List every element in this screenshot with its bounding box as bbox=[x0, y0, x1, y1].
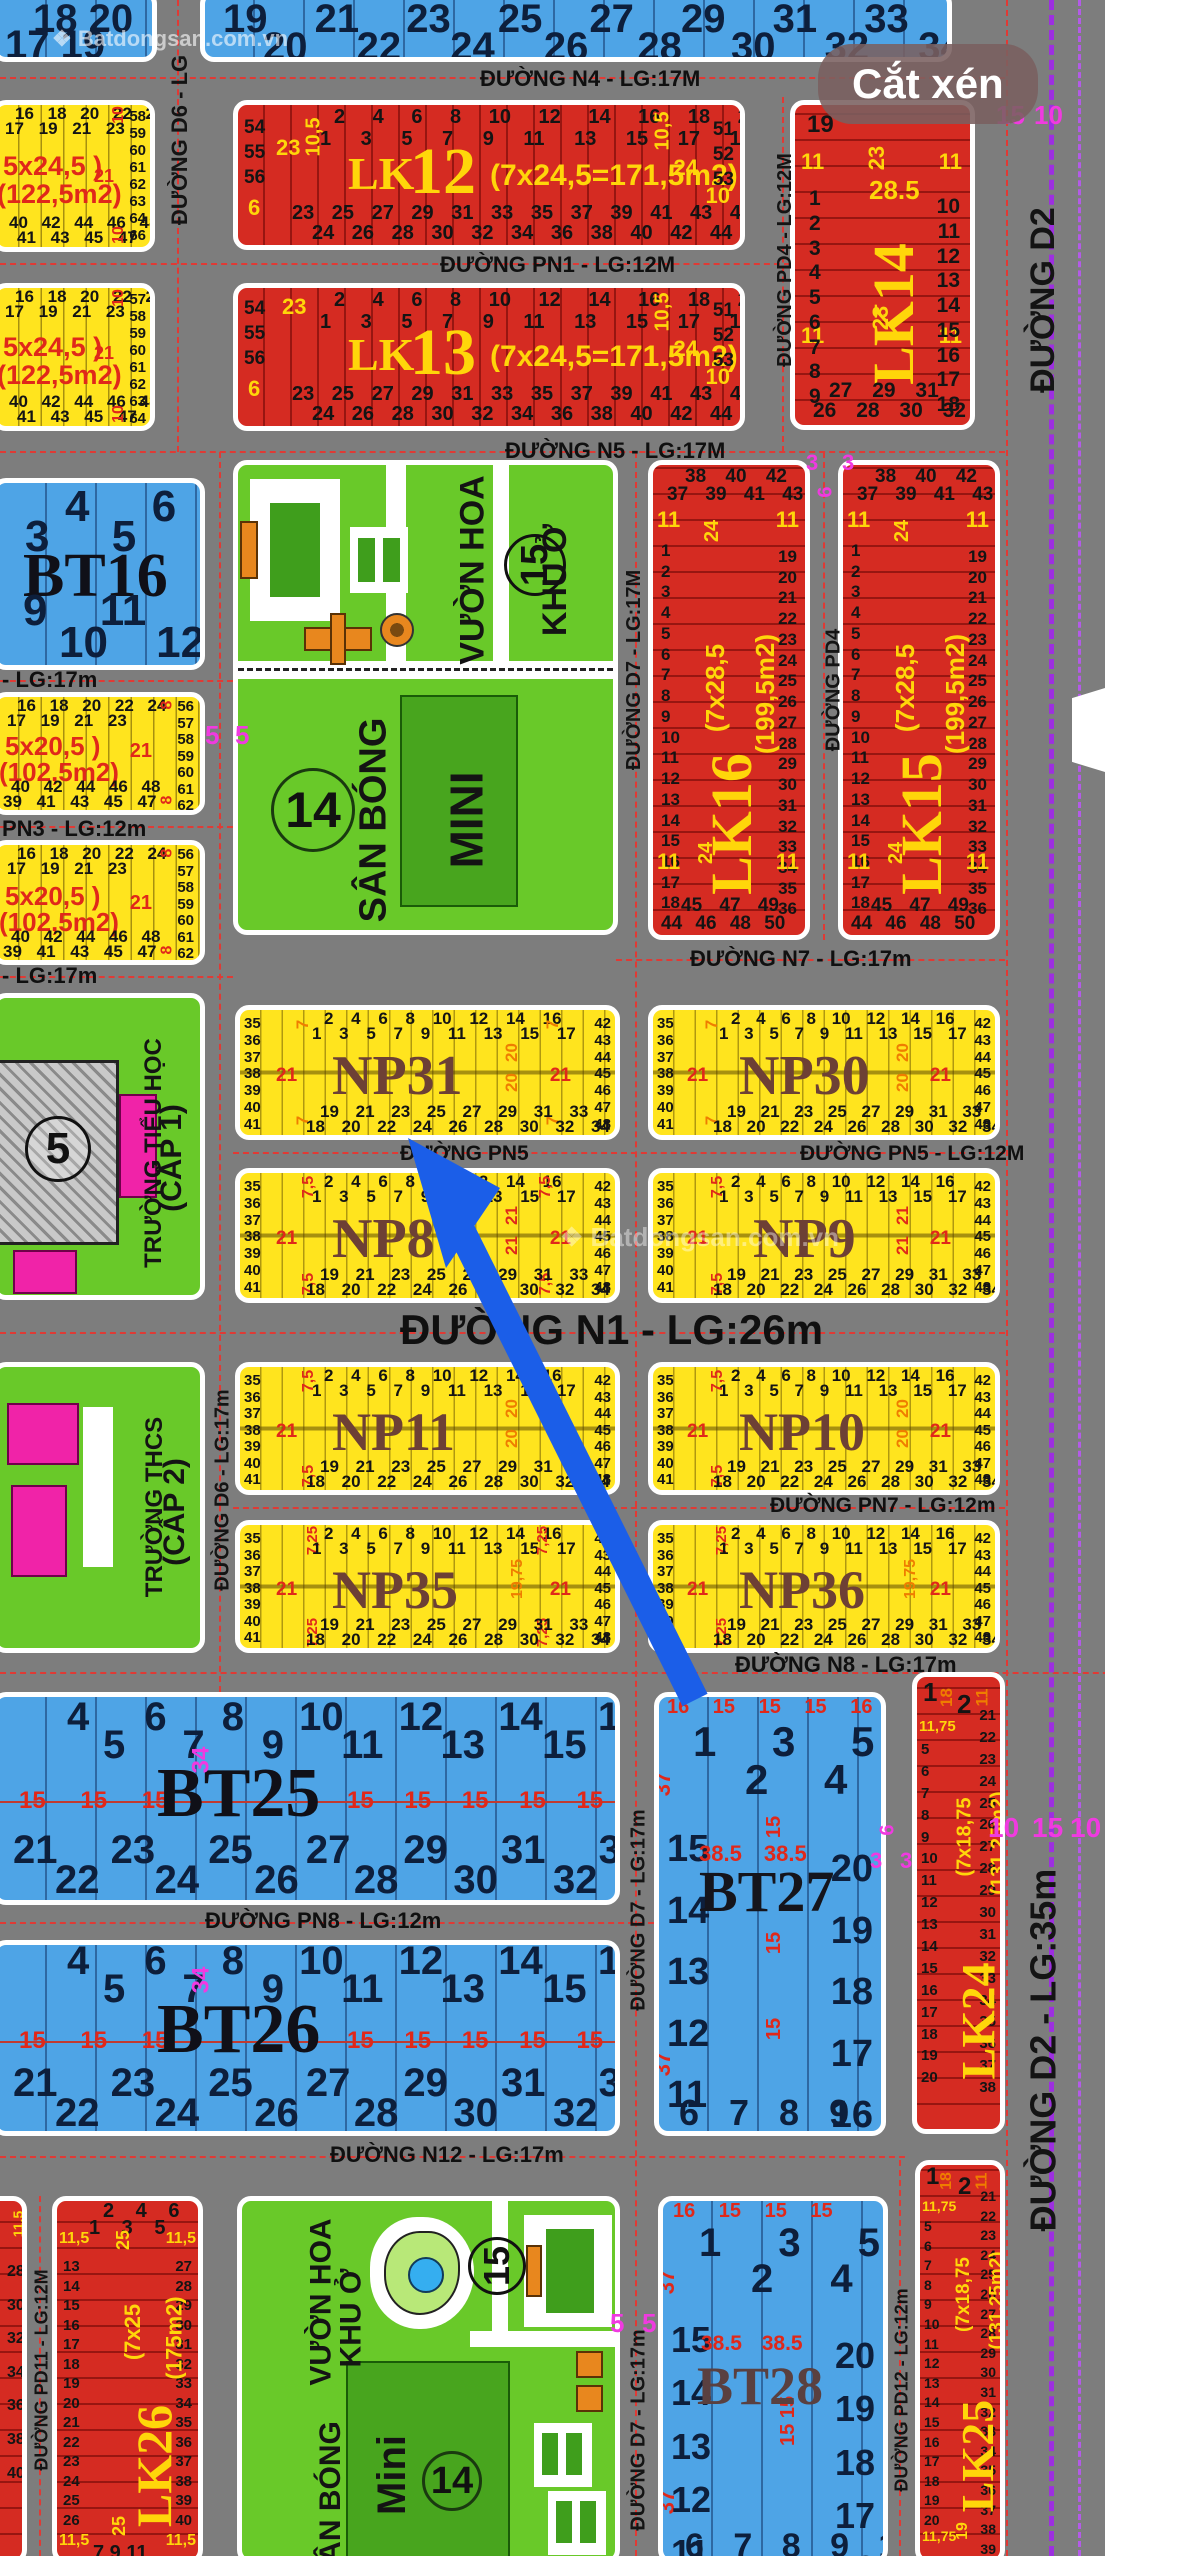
survey-mark: 34 bbox=[189, 1967, 213, 1994]
plot-numbers: 17 19 21 23 bbox=[7, 860, 127, 877]
survey-mark: 6 bbox=[816, 486, 836, 497]
plot-numbers: 6 7 8 9 10 bbox=[679, 2095, 886, 2131]
block-label: LK25 bbox=[955, 2400, 1001, 2512]
block-label: NP8 bbox=[332, 1211, 435, 1267]
d2-median-line bbox=[1078, 0, 1081, 2556]
block-np36: 35 36 37 38 39 40 41 7,25 7,25 21 2 4 6 … bbox=[648, 1520, 1000, 1653]
block-5x245-b: 16 18 20 22 24 17 19 21 23 5x24,5 ) (122… bbox=[0, 283, 155, 431]
dimension-label: 25 bbox=[114, 2230, 132, 2250]
pond bbox=[408, 2257, 444, 2293]
table-tennis-table bbox=[554, 2499, 574, 2545]
plot-numbers: 2 bbox=[958, 2175, 971, 2199]
block-dims: 5x24,5 ) bbox=[3, 334, 102, 361]
map-margin bbox=[1105, 0, 1179, 2556]
zone-number: 5 bbox=[25, 1116, 91, 1182]
plot-numbers: 22 24 26 28 30 32 34 bbox=[55, 1860, 620, 1900]
street-label-pn7: ĐƯỜNG PN7 - LG:12m bbox=[770, 1494, 996, 1518]
dimension-label: 11,5 bbox=[59, 2231, 89, 2247]
dimension-label: 37 bbox=[658, 2270, 678, 2294]
dimension-label: 10 bbox=[706, 185, 730, 207]
dimension-label: 8 bbox=[160, 849, 176, 858]
block-np11: 35 36 37 38 39 40 41 7,5 7,5 21 2 4 6 8 … bbox=[235, 1362, 620, 1495]
dimension-label: 20 bbox=[503, 1043, 520, 1062]
dimension-label: 21 bbox=[94, 167, 114, 185]
block-5x245-a: 16 18 20 22 24 17 19 21 23 5x24,5 ) (122… bbox=[0, 100, 155, 252]
dimension-label: 7,25 bbox=[535, 1526, 550, 1555]
block-lk24: 1 2 18 11 11,75 5 6 7 8 9 10 11 12 13 14… bbox=[912, 1672, 1005, 2134]
tennis-court bbox=[268, 501, 322, 599]
plot-numbers: 26 28 30 32 bbox=[813, 400, 966, 421]
dimension-label: 10 bbox=[111, 405, 127, 423]
dimension-label: 15 bbox=[764, 1816, 784, 1838]
plot-numbers: 18 20 22 24 26 28 30 32 34 bbox=[713, 1281, 1000, 1298]
block-label: LK15 bbox=[893, 753, 951, 895]
road-centerline bbox=[1006, 0, 1008, 2556]
land-plot-map: ĐƯỜNG D2 ĐƯỜNG D2 - LG:35m 18 20 17 19 1… bbox=[0, 0, 1179, 2556]
plot-numbers: 18 20 22 24 26 28 30 32 34 bbox=[306, 1631, 610, 1648]
plot-numbers: 35 36 37 38 39 40 41 bbox=[244, 1531, 261, 1647]
block-bt26: 4 6 8 10 12 14 16 5 7 9 11 13 15 17 15 1… bbox=[0, 1940, 620, 2136]
dimension-label: 24 bbox=[674, 338, 698, 360]
park-monument bbox=[330, 613, 346, 665]
street-label-lg17: - LG:17m bbox=[2, 963, 97, 989]
park-label: VƯỜN HOA bbox=[456, 475, 490, 664]
dimension-label: 11,75 bbox=[919, 1719, 956, 1734]
plot-numbers: 17 19 21 23 bbox=[5, 120, 125, 137]
dimension-label: 24 bbox=[696, 842, 716, 864]
watermark: ❖ Batdongsan.com.vn bbox=[560, 1222, 839, 1253]
zone-number: 15 bbox=[504, 534, 566, 596]
dimension-label: 20 bbox=[503, 1073, 520, 1092]
x-marker-icon bbox=[576, 2351, 603, 2378]
street-label-pn8: ĐƯỜNG PN8 - LG:12m bbox=[205, 1908, 441, 1934]
plot-numbers: 1 3 5 7 9 11 13 15 17 bbox=[719, 1025, 967, 1042]
block-bt27: 16 15 15 15 16 1 3 5 2 4 37 37 15 14 13 … bbox=[654, 1692, 886, 2136]
dimension-label: 18 bbox=[939, 2172, 955, 2190]
plot-numbers: 1 3 5 7 9 11 13 15 17 bbox=[719, 1188, 967, 1205]
block-np31: 35 36 37 38 39 40 41 7 7 21 2 4 6 8 10 1… bbox=[235, 1005, 620, 1140]
plot-numbers: 1 3 5 7 9 11 13 15 17 bbox=[719, 1382, 967, 1399]
street-label-lg17: - LG:17m bbox=[2, 667, 97, 693]
block-label: BT25 bbox=[157, 1759, 320, 1829]
block-park-bottom: VƯỜN HOA KHU Ở 15 SÂN BÓNG Mini 14 bbox=[237, 2196, 620, 2556]
block-label: LK16 bbox=[703, 753, 761, 895]
road-centerline bbox=[0, 1672, 1179, 1674]
block-label-number: 12 bbox=[410, 139, 476, 205]
street-label-d6-top: ĐƯỜNG D6 - LG bbox=[169, 55, 191, 225]
block-dims: (199,5m2) bbox=[752, 634, 778, 754]
street-label-n5: ĐƯỜNG N5 - LG:17M bbox=[505, 438, 725, 464]
survey-mark: 5 bbox=[610, 2310, 624, 2336]
school-grade: (CẤP 2) bbox=[160, 1458, 190, 1566]
street-label-pn1: ĐƯỜNG PN1 - LG:12M bbox=[440, 252, 675, 278]
street-label-pn5: ĐƯỜNG PN5 bbox=[400, 1142, 529, 1166]
badge-label: Cắt xén bbox=[852, 60, 1004, 107]
block-lk16: 38 40 42 37 39 41 43 11 11 24 1 2 3 4 5 … bbox=[648, 460, 810, 940]
plot-numbers: 18 20 22 24 26 28 30 32 34 bbox=[713, 1118, 1000, 1135]
dimension-label: 11,5 bbox=[166, 2231, 196, 2247]
dimension-label: 21 bbox=[687, 1066, 708, 1085]
plot-numbers: 10 12 bbox=[59, 621, 205, 665]
block-label-number: 13 bbox=[410, 320, 476, 386]
plot-numbers: 28 30 32 34 36 38 40 bbox=[7, 2255, 25, 2490]
block-label: BT28 bbox=[697, 2359, 823, 2413]
dimension-label: 8 bbox=[160, 946, 176, 955]
street-label-n8: ĐƯỜNG N8 - LG:17m bbox=[735, 1652, 957, 1678]
dimension-label: 20 bbox=[894, 1429, 911, 1448]
table-tennis-table bbox=[540, 2431, 560, 2477]
dimension-label: 21 bbox=[894, 1206, 911, 1225]
block-label: BT27 bbox=[699, 1863, 834, 1921]
plot-numbers: 42 43 44 45 46 47 48 bbox=[594, 1531, 611, 1647]
park-building bbox=[240, 521, 258, 579]
street-label-d6: ĐƯỜNG D6 - LG:17m bbox=[213, 1389, 233, 1590]
dimension-label: 21 bbox=[276, 1066, 297, 1085]
school-building bbox=[11, 1485, 67, 1577]
school-grade: (CẤP 1) bbox=[157, 1104, 187, 1212]
plot-numbers: 18 20 22 24 26 28 30 32 34 bbox=[713, 1473, 1000, 1490]
survey-mark: 3 bbox=[900, 1850, 912, 1872]
block-label: NP30 bbox=[739, 1048, 870, 1104]
dimension-label: 10 bbox=[706, 366, 730, 388]
plot-numbers: 44 46 48 50 bbox=[661, 914, 785, 933]
dimension-label: 7 bbox=[703, 1020, 720, 1029]
dimension-label: 20 bbox=[894, 1043, 911, 1062]
dimension-label: 15 15 15 bbox=[19, 1789, 168, 1813]
plot-numbers: 2 4 bbox=[751, 2259, 853, 2299]
road-centerline bbox=[0, 451, 1005, 453]
plot-numbers: 5 6 7 8 9 10 11 12 13 14 15 16 17 18 19 … bbox=[921, 1739, 938, 2089]
watermark: ❖ Batdongsan.com.vn bbox=[52, 26, 288, 52]
block-school-cap2: TRƯỜNG THCS (CẤP 2) bbox=[0, 1362, 205, 1653]
street-label-n7: ĐƯỜNG N7 - LG:17m bbox=[690, 946, 912, 972]
dimension-label: 8 bbox=[160, 701, 176, 710]
dimension-label: 28.5 bbox=[869, 177, 920, 203]
dimension-label: 20 bbox=[503, 1429, 520, 1448]
dimension-label: 11,75 bbox=[922, 2199, 956, 2213]
dimension-label: 38.5 38.5 bbox=[701, 2333, 803, 2354]
block-park-top: VƯỜN HOA KHU Ở 15 SÂN BÓNG MINI 14 bbox=[233, 460, 618, 935]
dimension-label: 20 bbox=[894, 1073, 911, 1092]
dimension-label: 11 bbox=[847, 509, 870, 531]
dimension-label: 7 bbox=[544, 1020, 561, 1029]
plot-numbers: 42 43 44 45 46 47 48 bbox=[974, 1373, 991, 1489]
dimension-label: 21 bbox=[930, 1066, 951, 1085]
survey-mark: 3 bbox=[870, 1850, 882, 1872]
block-np10: 35 36 37 38 39 40 41 7,5 7,5 21 2 4 6 8 … bbox=[648, 1362, 1000, 1495]
plot-numbers: 35 36 37 38 39 40 41 bbox=[657, 1531, 674, 1647]
street-label-pn5-lg: ĐƯỜNG PN5 - LG:12M bbox=[800, 1142, 1024, 1166]
plot-numbers: 7 9 11 bbox=[93, 2543, 148, 2556]
survey-mark: 3 bbox=[806, 452, 818, 474]
survey-mark: 6 bbox=[878, 1824, 898, 1835]
street-label-d7: ĐƯỜNG D7 - LG:17m bbox=[629, 2329, 649, 2530]
plot-numbers: 44 46 48 50 bbox=[851, 914, 975, 933]
block-label: NP35 bbox=[332, 1563, 458, 1617]
block-dims: 5x24,5 ) bbox=[3, 153, 102, 180]
dimension-label: 16 15 15 15 bbox=[673, 2201, 833, 2221]
plot-numbers: 42 43 44 45 46 47 48 bbox=[594, 1373, 611, 1489]
survey-mark: 10 bbox=[1034, 102, 1063, 128]
plot-numbers: 35 36 37 38 39 40 41 bbox=[657, 1373, 674, 1489]
block-label: LK26 bbox=[129, 2405, 179, 2527]
plot-numbers: 2 4 6 8 10 12 14 16 18 20 22 bbox=[334, 107, 745, 127]
street-label-pn3: PN3 - LG:12m bbox=[2, 816, 146, 842]
dimension-label: 11 bbox=[801, 151, 824, 173]
dimension-label: 15 bbox=[764, 2018, 784, 2040]
block-dims: (175m2) bbox=[164, 2296, 186, 2379]
dimension-label: 15 15 15 bbox=[19, 2029, 168, 2053]
plot-numbers: 22 24 26 28 30 32 34 bbox=[55, 2093, 620, 2133]
zone-number: 15 bbox=[468, 2237, 526, 2295]
park-label: SÂN BÓNG bbox=[354, 718, 392, 923]
dimension-label: 21 bbox=[930, 1229, 951, 1248]
dimension-label: 19 bbox=[955, 2522, 971, 2540]
dimension-label: 24 bbox=[702, 520, 722, 542]
dimension-label: 11 bbox=[657, 851, 680, 873]
dimension-label: 23 bbox=[282, 296, 306, 318]
x-marker-icon bbox=[576, 2385, 603, 2412]
dimension-label: 11 bbox=[657, 509, 680, 531]
plot-numbers: 23 25 27 29 31 33 35 37 39 41 43 45 47 4… bbox=[292, 384, 745, 404]
block-label: NP36 bbox=[739, 1563, 865, 1617]
dimension-label: 23 bbox=[866, 146, 888, 170]
dimension-label: 10 bbox=[111, 106, 127, 124]
plot-numbers: 5 6 7 8 9 10 11 12 13 14 15 16 17 18 19 … bbox=[924, 2217, 940, 2531]
plot-numbers: 1 3 5 7 9 11 13 15 17 bbox=[719, 1540, 967, 1557]
dimension-label: 21 bbox=[687, 1580, 708, 1599]
street-label-pd12: ĐƯỜNG PD12 - LG:12m bbox=[893, 2288, 911, 2491]
plot-numbers: 23 25 27 29 31 33 35 37 39 41 43 45 47 4… bbox=[292, 203, 745, 223]
block-dims: (7x18,75 bbox=[954, 1798, 974, 1877]
block-lk13: 54 55 56 23 6 2 4 6 8 10 12 14 16 18 20 … bbox=[233, 283, 745, 431]
dimension-label: 21 bbox=[130, 741, 152, 761]
plot-numbers: 1 bbox=[923, 1679, 937, 1705]
dimension-label: 6 bbox=[248, 197, 260, 219]
dimension-label: 37 bbox=[654, 1772, 674, 1796]
dimension-label: 15 15 15 15 15 16 bbox=[347, 2029, 620, 2053]
dimension-label: 21 bbox=[503, 1206, 520, 1225]
watermark-logo-icon: ❖ bbox=[52, 26, 72, 51]
plot-numbers: 37 39 41 43 bbox=[857, 485, 993, 504]
plot-numbers: 39 41 43 45 47 bbox=[3, 943, 156, 960]
plot-numbers: 57 58 59 60 61 62 63 64 bbox=[129, 292, 146, 428]
dimension-label: 21 bbox=[503, 1236, 520, 1255]
road-notch bbox=[1072, 688, 1105, 772]
dimension-label: 25 bbox=[110, 2516, 128, 2536]
block-label: NP31 bbox=[332, 1048, 463, 1104]
block-dims: (199,5m2) bbox=[942, 634, 968, 754]
park-label: Mini bbox=[372, 2435, 412, 2515]
block-dims: (7x18,75 bbox=[954, 2257, 973, 2332]
dimension-label: 16 15 15 15 16 bbox=[667, 1697, 872, 1717]
watermark-text: Batdongsan.com.vn bbox=[591, 1222, 839, 1252]
block-dims: 5x20,5 ) bbox=[5, 883, 100, 909]
street-label-n4: ĐƯỜNG N4 - LG:17M bbox=[480, 66, 700, 92]
dimension-label: 23 bbox=[276, 137, 300, 159]
park-label: VƯỜN HOA bbox=[307, 2218, 337, 2385]
plot-numbers: 51 52 53 bbox=[713, 117, 734, 192]
street-label-n12: ĐƯỜNG N12 - LG:17m bbox=[330, 2142, 564, 2168]
street-label-pd11: ĐƯỜNG PD11 - LG:12M bbox=[33, 2269, 51, 2470]
dimension-label: 10 bbox=[111, 289, 127, 307]
street-label-pd4: ĐƯỜNG PD4 - LG:12M bbox=[775, 153, 795, 367]
park-label: MINI bbox=[444, 771, 490, 868]
dimension-label: 21 bbox=[930, 1580, 951, 1599]
dimension-label: 21 bbox=[94, 344, 114, 362]
dimension-label: 18 bbox=[938, 1688, 955, 1707]
plot-numbers: 1 3 5 7 9 11 13 15 17 19 21 bbox=[320, 129, 745, 149]
block-label: LK24 bbox=[956, 1962, 1004, 2079]
dimension-label: 20 bbox=[503, 1399, 520, 1418]
plot-numbers: 58 59 60 61 62 63 64 66 bbox=[129, 109, 146, 245]
street-label-pd4: ĐƯỜNG PD4 bbox=[823, 629, 843, 752]
plot-numbers: 24 26 28 30 32 34 36 38 40 42 44 46 48 5… bbox=[312, 404, 745, 424]
zone-number: 14 bbox=[271, 768, 355, 852]
block-label: LK bbox=[348, 332, 414, 378]
plot-numbers: 2 4 bbox=[745, 1759, 847, 1801]
street-label-d2: ĐƯỜNG D2 bbox=[1026, 207, 1060, 393]
block-dims: (7x25 bbox=[122, 2304, 144, 2360]
plot-numbers: 35 36 37 38 39 40 41 bbox=[244, 1179, 261, 1297]
dimension-label: 15 15 15 15 15 16 bbox=[347, 1789, 620, 1813]
plot-numbers: 17 19 21 23 bbox=[5, 303, 125, 320]
plot-numbers: 18 20 22 24 26 28 30 32 34 bbox=[713, 1631, 1000, 1648]
park-label: KHU Ở bbox=[336, 2269, 366, 2368]
block-label: BT26 bbox=[157, 1995, 320, 2065]
dimension-label: 24 bbox=[892, 520, 912, 542]
park-label: SÂN BÓNG bbox=[316, 2421, 346, 2556]
dimension-label: 21 bbox=[894, 1236, 911, 1255]
tennis-court bbox=[544, 2227, 596, 2315]
plot-numbers: 37 39 41 43 bbox=[667, 485, 803, 504]
school-building bbox=[13, 1250, 77, 1294]
block-bt28: 16 15 15 15 1 3 5 2 4 37 37 15 14 13 12 … bbox=[658, 2196, 888, 2556]
dimension-label: 6 bbox=[248, 378, 260, 400]
dimension-label: 20 bbox=[894, 1399, 911, 1418]
block-lk15: 38 40 42 37 39 41 43 11 11 24 1 2 3 4 5 … bbox=[838, 460, 1000, 940]
plot-numbers: 42 43 44 45 46 47 48 bbox=[594, 1016, 611, 1134]
dimension-label: 11 bbox=[847, 851, 870, 873]
dimension-label: 21 bbox=[550, 1580, 571, 1599]
dimension-label: 11,5 bbox=[166, 2533, 196, 2549]
street-label-d7: ĐƯỜNG D7 - LG:17M bbox=[624, 570, 644, 770]
dimension-label: 11 bbox=[776, 851, 799, 873]
plot-numbers: 6 7 8 9 10 bbox=[685, 2529, 888, 2556]
block-lk14: 19 11 11 11 11 28.5 23 23 1 2 3 4 5 6 7 … bbox=[790, 100, 975, 430]
plot-numbers: 27 29 31 bbox=[829, 380, 939, 401]
plot-numbers: 18 20 22 24 26 28 30 32 34 bbox=[306, 1281, 610, 1298]
plot-numbers: 18 20 22 24 26 28 30 32 34 bbox=[306, 1473, 610, 1490]
dimension-label: 24 bbox=[886, 842, 906, 864]
dimension-label: 11 bbox=[939, 151, 962, 173]
block-np35: 35 36 37 38 39 40 41 7,25 7,25 21 2 4 6 … bbox=[235, 1520, 620, 1653]
plot-numbers: 13 14 15 16 17 18 19 20 21 22 23 24 25 2… bbox=[63, 2257, 80, 2530]
plot-numbers: 1 3 5 7 9 11 13 15 17 bbox=[312, 1025, 576, 1042]
block-label: LK bbox=[348, 151, 414, 197]
block-lk25: 1 2 18 11 11,75 5 6 7 8 9 10 11 12 13 14… bbox=[915, 2160, 1005, 2556]
table-tennis-table bbox=[356, 536, 377, 584]
block-dims: (122,5m2) bbox=[0, 362, 122, 389]
table-tennis-table bbox=[564, 2431, 584, 2477]
watermark-text: Batdongsan.com.vn bbox=[78, 26, 288, 51]
street-label-d2-lg35: ĐƯỜNG D2 - LG:35m bbox=[1025, 1869, 1061, 2232]
survey-mark: 5 bbox=[235, 722, 249, 748]
block-dims: (7x28,5 bbox=[892, 644, 918, 732]
block-bt16: 4 6 3 5 BT16 9 11 10 12 bbox=[0, 478, 205, 670]
plot-numbers: 54 55 56 bbox=[244, 115, 265, 190]
watermark-logo-icon: ❖ bbox=[560, 1222, 583, 1252]
plot-numbers: 1 2 3 4 5 6 7 8 9 bbox=[809, 187, 821, 410]
survey-mark: 5 bbox=[642, 2310, 656, 2336]
block-5x205-a: 16 18 20 22 24 17 19 21 23 5x20,5 ) (102… bbox=[0, 692, 205, 815]
flower-bed bbox=[380, 613, 414, 647]
street-label-d7: ĐƯỜNG D7 - LG:17m bbox=[629, 1809, 649, 2010]
survey-mark: 5 bbox=[205, 722, 219, 748]
plot-numbers: 24 26 28 30 32 34 36 38 40 42 44 46 48 5… bbox=[312, 223, 745, 243]
dimension-label: 11,5 bbox=[11, 2211, 25, 2237]
dimension-label: 19,75 bbox=[903, 1559, 919, 1599]
plot-numbers: 19 bbox=[807, 113, 834, 137]
table-tennis-table bbox=[381, 536, 402, 584]
dimension-label: 11,5 bbox=[59, 2533, 89, 2549]
dimension-label: 21 bbox=[550, 1422, 571, 1441]
dimension-label: 21 bbox=[130, 893, 152, 913]
block-np30: 35 36 37 38 39 40 41 7 7 21 2 4 6 8 10 1… bbox=[648, 1005, 1000, 1140]
plot-numbers: 51 52 53 bbox=[713, 298, 734, 373]
park-path bbox=[238, 661, 613, 679]
street-label-n1: ĐƯỜNG N1 - LG:26m bbox=[400, 1306, 823, 1354]
dimension-label: 15 bbox=[764, 1932, 784, 1954]
table-tennis-table bbox=[578, 2499, 598, 2545]
plot-numbers: 1 3 5 7 9 11 13 15 17 bbox=[312, 1382, 576, 1399]
block-label: NP11 bbox=[332, 1405, 455, 1459]
plot-numbers: 56 57 58 59 60 61 62 bbox=[177, 699, 194, 815]
dimension-label: 21 bbox=[930, 1422, 951, 1441]
plot-numbers: 10 11 12 13 14 15 16 17 18 bbox=[937, 195, 960, 418]
dimension-label: 11 bbox=[966, 851, 989, 873]
plot-numbers: 42 43 44 45 46 47 48 bbox=[974, 1179, 991, 1297]
dimension-label: 21 bbox=[276, 1422, 297, 1441]
dimension-label: 7 bbox=[294, 1020, 311, 1029]
zone-number: 14 bbox=[422, 2451, 482, 2511]
dimension-label: 11 bbox=[776, 509, 799, 531]
plot-numbers: 2 bbox=[957, 1691, 971, 1717]
block-dims: (131,25m2) bbox=[988, 2251, 1005, 2349]
survey-mark: 15 bbox=[1032, 1814, 1063, 1842]
dimension-label: 11,75 bbox=[922, 2529, 956, 2543]
block-dims: 5x20,5 ) bbox=[5, 733, 100, 759]
survey-mark: 10 bbox=[988, 1814, 1019, 1842]
dimension-label: 8 bbox=[160, 796, 176, 805]
block-lk26: 2 4 6 1 3 5 25 11,5 11,5 13 14 15 16 17 … bbox=[52, 2196, 203, 2556]
plot-numbers: 54 55 56 bbox=[244, 296, 265, 371]
dimension-label: 19,75 bbox=[510, 1559, 526, 1599]
dimension-label: 10,5 bbox=[653, 293, 673, 332]
dimension-label: 21 bbox=[550, 1066, 571, 1085]
path-dashes bbox=[238, 668, 613, 671]
block-5x205-b: 16 18 20 22 24 17 19 21 23 5x20,5 ) (102… bbox=[0, 840, 205, 965]
block-label: LK14 bbox=[865, 243, 923, 385]
dimension-label: 10 bbox=[111, 226, 127, 244]
block-dims: (7x24,5=171,5m2) bbox=[490, 161, 738, 191]
dimension-label: 10,5 bbox=[653, 112, 673, 151]
block-partial-left: 11,5 28 30 32 34 36 38 40 bbox=[0, 2196, 27, 2556]
dimension-label: 11 bbox=[966, 509, 989, 531]
dimension-label: 21 bbox=[276, 1229, 297, 1248]
survey-mark: 10 bbox=[1070, 1814, 1101, 1842]
plot-numbers: 35 36 37 38 39 40 41 bbox=[244, 1373, 261, 1489]
